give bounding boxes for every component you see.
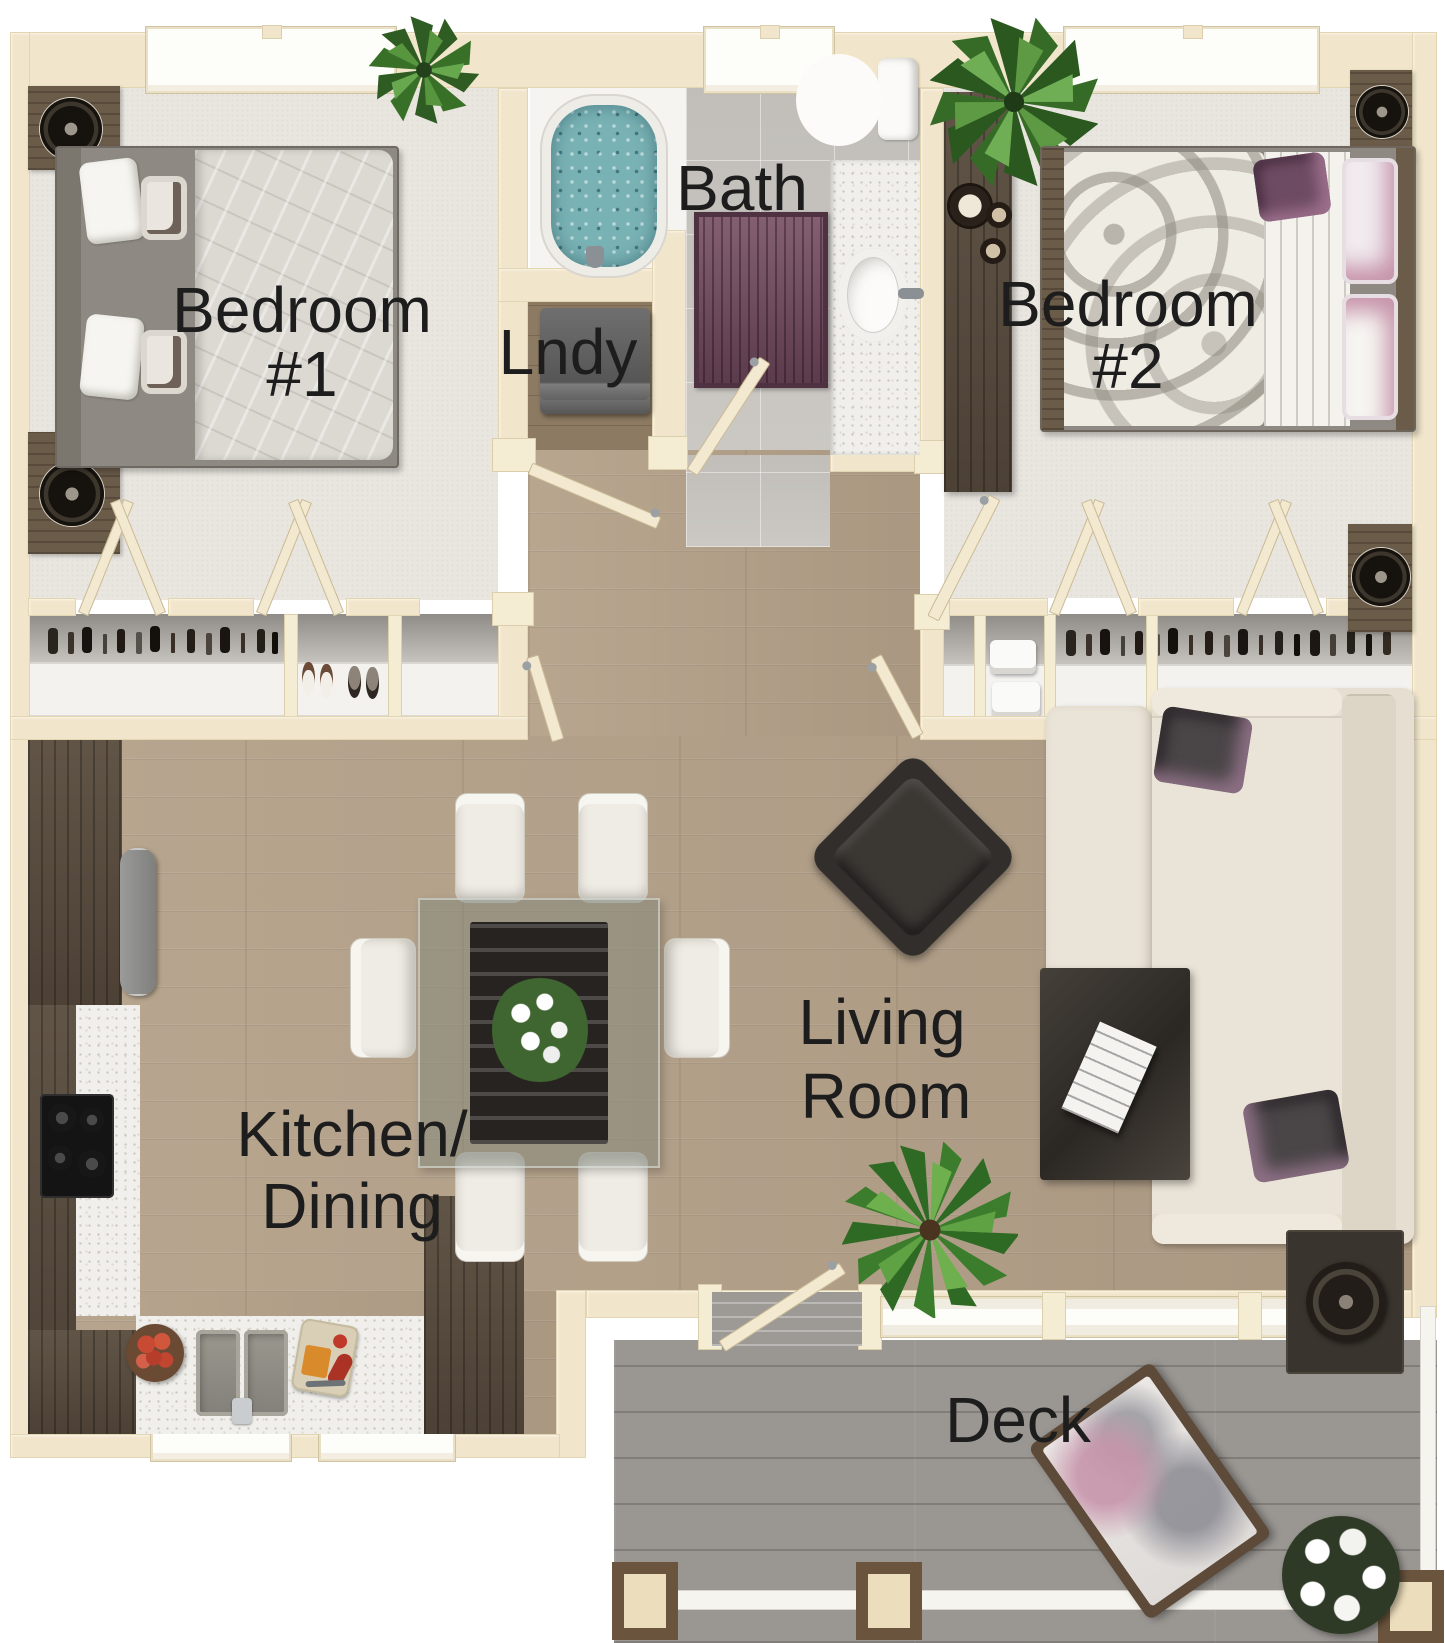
towel-stack <box>992 682 1040 718</box>
window-kitchen <box>318 1430 456 1462</box>
deck-flower-pot <box>1282 1516 1400 1634</box>
bifold-leg <box>288 499 344 616</box>
living-room-label-line1: Living <box>798 990 965 1054</box>
deck-post <box>856 1562 922 1640</box>
pillow <box>79 313 145 401</box>
stove-cooktop <box>40 1094 114 1198</box>
window-mullion <box>760 25 780 39</box>
deck-label: Deck <box>945 1388 1091 1452</box>
sliding-door-mullion <box>1042 1292 1066 1340</box>
knife <box>305 1380 345 1387</box>
shoe-heel <box>302 662 315 696</box>
speaker-on-nightstand <box>1352 548 1410 606</box>
window-mullion <box>1183 25 1203 39</box>
window-bedroom2 <box>1063 26 1320 94</box>
door-post <box>492 592 534 626</box>
bedroom1-label-line2: #1 <box>266 342 337 406</box>
accent-pillow <box>141 176 187 240</box>
wall-bedroom1-south <box>28 598 76 616</box>
headboard <box>1396 148 1414 430</box>
accent-pillow <box>1252 151 1332 222</box>
shoe-heel <box>366 667 379 699</box>
speaker-mat <box>1286 1230 1404 1374</box>
dining-chair <box>350 938 416 1058</box>
bath-entry-floor <box>686 455 830 547</box>
stove-burner <box>78 1150 106 1178</box>
door-post <box>648 436 688 470</box>
fridge-handles <box>120 848 156 996</box>
bathtub <box>542 96 666 276</box>
stove-burner <box>48 1146 72 1170</box>
window-kitchen <box>150 1430 292 1462</box>
deck-post <box>612 1562 678 1640</box>
bedroom1-closet-shelf <box>28 662 498 718</box>
bedroom1-label-line1: Bedroom <box>172 278 432 342</box>
stove-burner <box>48 1104 76 1132</box>
sink-faucet <box>898 288 924 299</box>
shoes-row <box>48 628 58 654</box>
kitchen-tall-cabinet <box>28 740 122 1006</box>
shoes-row <box>1066 630 1076 656</box>
closet-divider <box>388 614 402 718</box>
kitchen-dining-label-line1: Kitchen/ <box>236 1102 467 1166</box>
cutting-board <box>290 1318 360 1399</box>
magazines <box>1061 1021 1156 1133</box>
pillow <box>78 157 146 245</box>
tomato <box>332 1333 348 1349</box>
rose-pillow <box>1342 158 1398 284</box>
wall-closet-left-bottom <box>10 716 528 740</box>
tub-faucet <box>586 246 604 268</box>
bifold-closet-door <box>254 496 346 612</box>
bifold-leg <box>110 499 166 616</box>
window-mullion <box>262 25 282 39</box>
bedroom2-label-line1: Bedroom <box>998 272 1258 336</box>
sofa-back-cushions <box>1342 694 1396 1238</box>
stove-burner <box>80 1108 104 1132</box>
dining-chair <box>664 938 730 1058</box>
closet-divider <box>1044 614 1056 720</box>
shoe-heel <box>320 664 333 698</box>
shoe-heel <box>348 666 361 698</box>
wall-bedroom2-south <box>1138 598 1234 616</box>
closet-divider <box>284 614 298 718</box>
fruit-bowl <box>126 1324 184 1382</box>
kitchen-dining-label-line2: Dining <box>261 1174 442 1238</box>
potted-plant <box>368 14 480 126</box>
table-centerpiece-flowers <box>492 974 588 1086</box>
closet-divider <box>974 614 986 720</box>
wall-bedroom2-south <box>944 598 1048 616</box>
towel-stack <box>990 640 1036 674</box>
sliding-door-mullion <box>1238 1292 1262 1340</box>
candle <box>980 238 1006 264</box>
laundry-label: Lndy <box>499 320 638 384</box>
dining-chair <box>578 1152 648 1262</box>
sofa-chaise <box>1046 706 1152 1012</box>
toilet-bowl <box>796 54 882 146</box>
dining-chair <box>455 793 525 903</box>
toilet-tank <box>878 58 918 140</box>
palm-plant <box>842 1142 1018 1318</box>
bifold-closet-door <box>1047 496 1139 612</box>
bath-label: Bath <box>676 156 808 220</box>
cheese <box>301 1345 332 1379</box>
speaker-on-nightstand <box>1356 86 1408 138</box>
wall-left <box>10 32 30 1458</box>
sectional-sofa <box>1152 688 1414 1244</box>
candle <box>950 186 990 226</box>
coffee-table <box>1040 968 1190 1180</box>
living-room-label-line2: Room <box>801 1064 972 1128</box>
dining-chair <box>578 793 648 903</box>
rose-pillow <box>1342 294 1398 420</box>
headboard <box>57 148 81 466</box>
window-bedroom1 <box>145 26 397 94</box>
candle <box>986 202 1012 228</box>
bedroom2-label-line2: #2 <box>1092 334 1163 398</box>
bifold-leg <box>1081 499 1137 616</box>
bifold-leg <box>1268 499 1324 616</box>
kitchen-faucet <box>232 1398 252 1424</box>
wall-bedroom1-south <box>346 598 420 616</box>
sofa-pillow <box>1153 705 1254 794</box>
sofa-pillow <box>1242 1088 1350 1183</box>
floor-plan: Bedroom #1 Bath Lndy Bedroom #2 Living R… <box>0 0 1445 1643</box>
bifold-closet-door <box>1234 496 1326 612</box>
wall-kitchen-jog <box>556 1290 586 1458</box>
bedroom1-closet-back <box>28 614 498 662</box>
wall-laundry-right <box>652 230 686 468</box>
wall-bedroom1-south <box>168 598 254 616</box>
kitchen-corner-cabinet <box>28 1330 136 1434</box>
floor-speaker <box>1306 1262 1386 1342</box>
bifold-closet-door <box>76 496 168 612</box>
wall-bath-south <box>830 452 920 472</box>
